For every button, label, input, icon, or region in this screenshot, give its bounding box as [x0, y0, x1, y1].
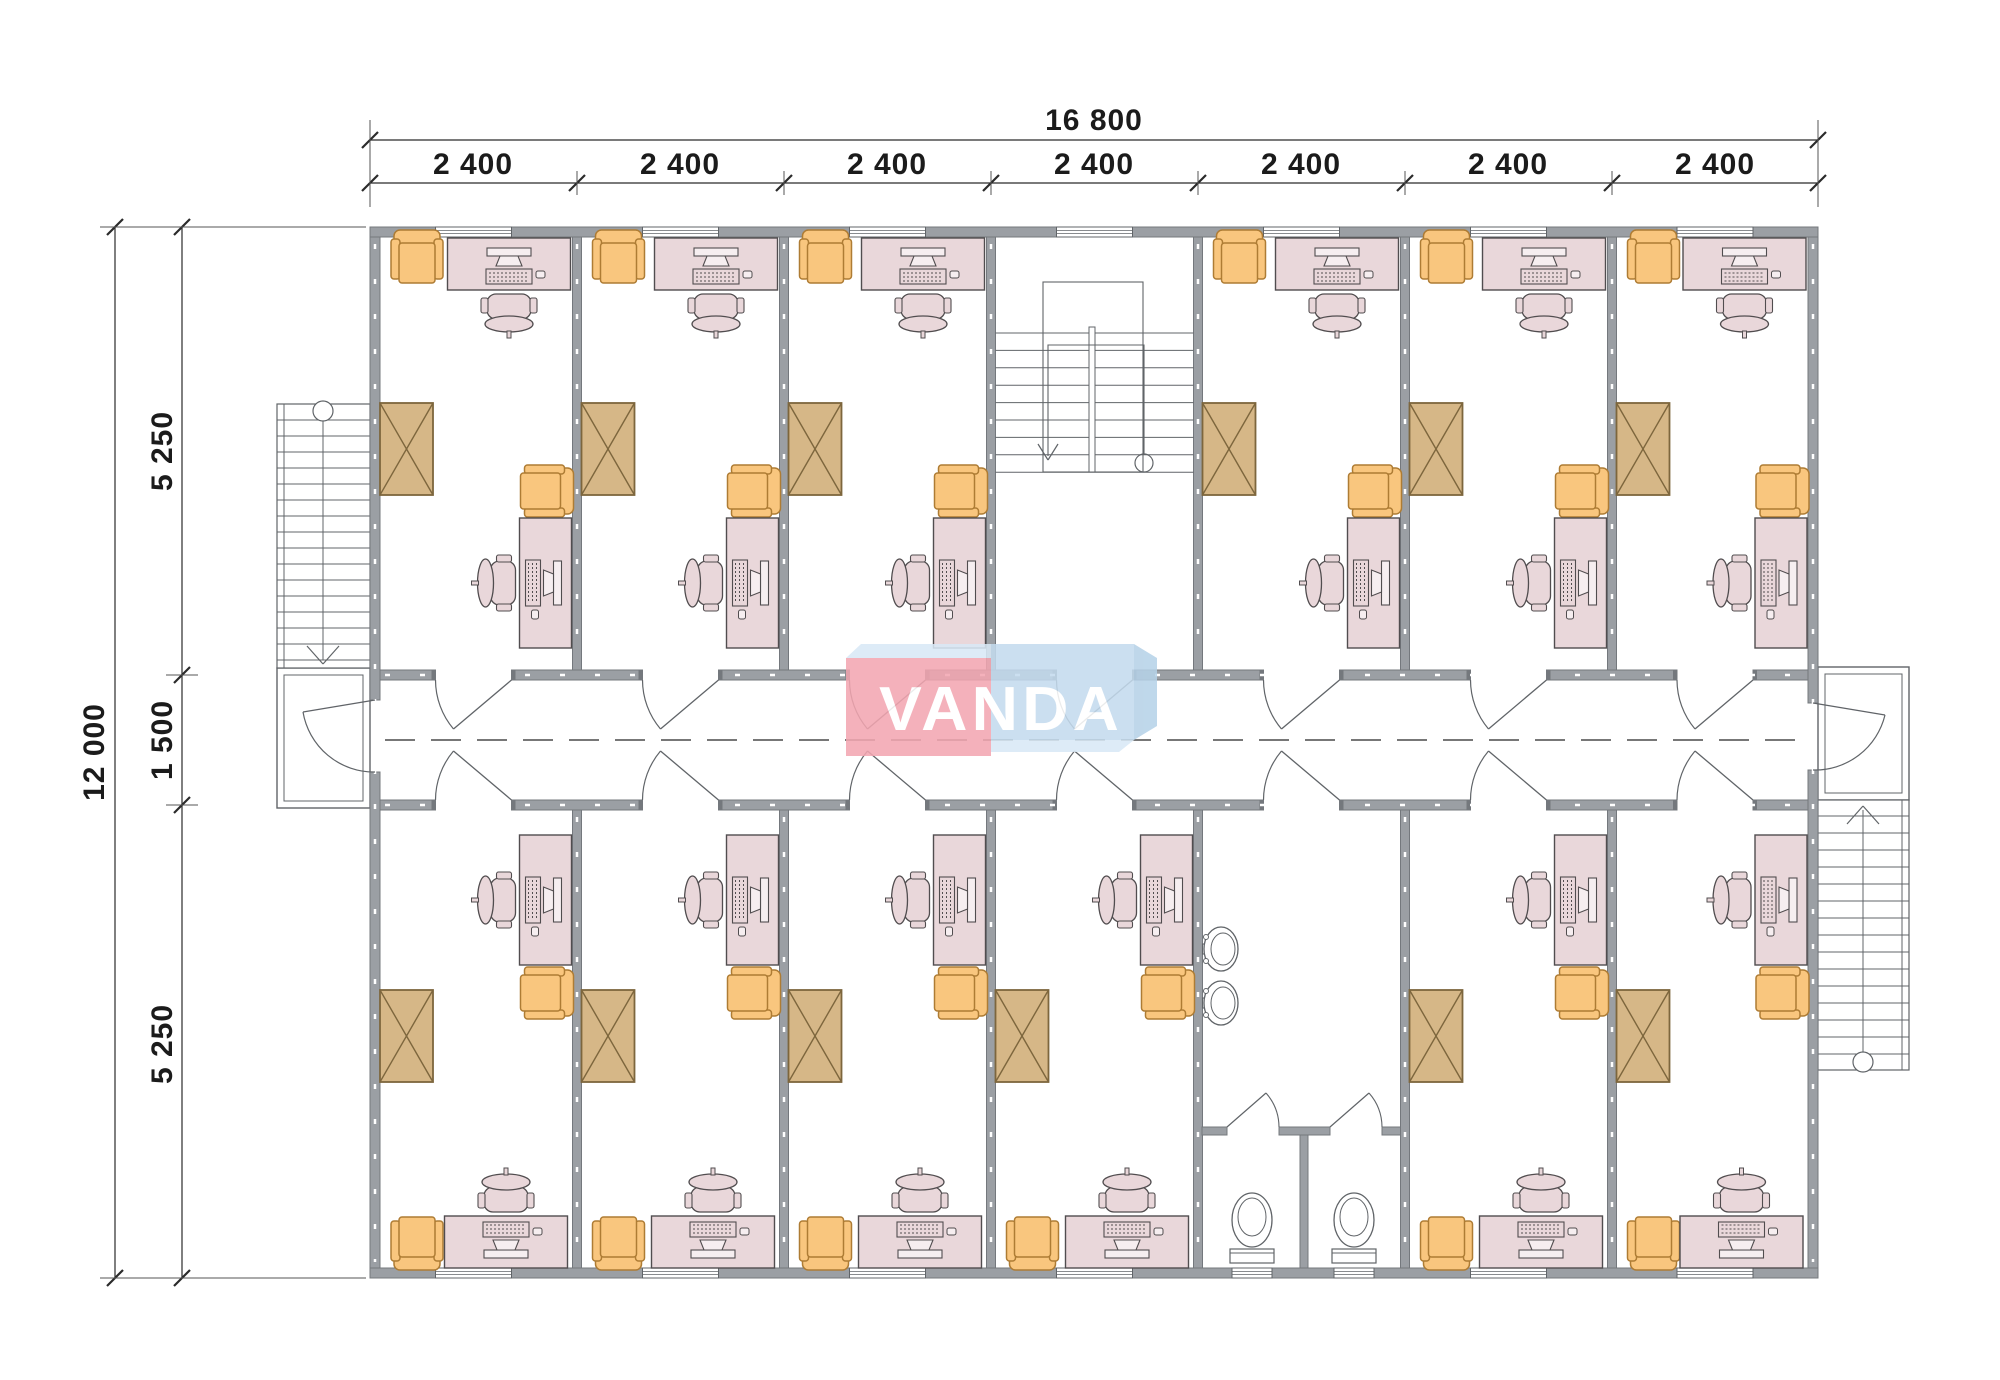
window	[643, 1268, 719, 1278]
toilet	[1332, 1193, 1376, 1263]
office-chair	[481, 294, 537, 338]
armchair	[593, 230, 645, 283]
workstation	[472, 835, 572, 965]
workstation	[652, 1168, 775, 1268]
office-chair	[1507, 872, 1551, 928]
office-chair	[892, 1168, 948, 1212]
office-chair	[886, 872, 930, 928]
dim-top-bay-2: 2 400	[640, 148, 720, 181]
workstation	[1507, 835, 1607, 965]
office-room-bottom	[789, 835, 988, 1270]
window	[1264, 227, 1340, 237]
left-balcony	[277, 668, 370, 808]
workstation	[1480, 1168, 1603, 1268]
washroom	[1203, 927, 1377, 1263]
stall-door	[1227, 1093, 1279, 1127]
right-balcony	[1818, 667, 1909, 800]
office-room-bottom	[1617, 835, 1810, 1270]
window	[1471, 1268, 1547, 1278]
office-room-bottom	[996, 835, 1195, 1270]
armchair	[1142, 967, 1195, 1019]
window	[1677, 227, 1753, 237]
dim-top-bay-5: 2 400	[1261, 148, 1341, 181]
armchair	[391, 230, 443, 283]
armchair	[1007, 1217, 1059, 1270]
dim-top-bay-3: 2 400	[847, 148, 927, 181]
workstation	[1707, 518, 1807, 648]
wardrobe	[996, 990, 1049, 1082]
dim-left-seg-2: 1 500	[146, 700, 179, 780]
sink	[1203, 927, 1239, 971]
armchair	[728, 465, 781, 517]
floor-plan: 16 800 2 400 2 400 2 400 2 400 2 400 2 4…	[0, 0, 2000, 1380]
workstation	[679, 835, 779, 965]
window	[643, 227, 719, 237]
window	[1334, 1268, 1374, 1278]
workstation	[886, 518, 986, 648]
internal-stairwell	[996, 282, 1194, 472]
workstation	[448, 238, 571, 338]
office-room-top	[380, 230, 574, 648]
workstation	[886, 835, 986, 965]
door	[1677, 751, 1753, 800]
office-chair	[1309, 294, 1365, 338]
office-chair	[688, 294, 744, 338]
door	[1264, 751, 1340, 800]
armchair	[1628, 1217, 1680, 1270]
armchair	[935, 967, 988, 1019]
wardrobe	[1617, 403, 1670, 495]
window	[1232, 1268, 1272, 1278]
workstation	[1300, 518, 1400, 648]
armchair	[935, 465, 988, 517]
sink	[1203, 981, 1239, 1025]
armchair	[728, 967, 781, 1019]
armchair	[1421, 230, 1473, 283]
workstation	[445, 1168, 568, 1268]
workstation	[1483, 238, 1606, 338]
wardrobe	[582, 403, 635, 495]
right-exterior-stairs	[1818, 800, 1909, 1072]
armchair	[800, 1217, 852, 1270]
workstation	[1276, 238, 1399, 338]
dim-top-bay-1: 2 400	[433, 148, 513, 181]
armchair	[1214, 230, 1266, 283]
office-chair	[1516, 294, 1572, 338]
wardrobe	[1410, 990, 1463, 1082]
workstation	[859, 1168, 982, 1268]
door	[643, 751, 719, 800]
window	[850, 227, 926, 237]
door	[436, 751, 512, 800]
window	[1057, 227, 1133, 237]
door	[436, 680, 512, 729]
door	[1471, 680, 1547, 729]
logo-wordmark: VANDA	[879, 675, 1123, 744]
wardrobe	[1617, 990, 1670, 1082]
workstation	[679, 518, 779, 648]
wardrobe	[789, 990, 842, 1082]
workstation	[655, 238, 778, 338]
window	[850, 1268, 926, 1278]
window	[436, 1268, 512, 1278]
wardrobe	[789, 403, 842, 495]
dim-top-bay-7: 2 400	[1675, 148, 1755, 181]
office-chair	[1513, 1168, 1569, 1212]
office-chair	[472, 872, 516, 928]
workstation	[1683, 238, 1806, 338]
armchair	[521, 967, 574, 1019]
office-chair	[1300, 555, 1344, 611]
office-chair	[1707, 555, 1751, 611]
stall-door	[1330, 1093, 1382, 1127]
office-chair	[1099, 1168, 1155, 1212]
dim-top-bay-4: 2 400	[1054, 148, 1134, 181]
armchair	[1421, 1217, 1473, 1270]
office-chair	[895, 294, 951, 338]
door	[1264, 680, 1340, 729]
office-room-top	[582, 230, 781, 648]
wardrobe	[380, 403, 433, 495]
wardrobe	[582, 990, 635, 1082]
armchair	[1756, 465, 1809, 517]
office-room-top	[1203, 230, 1402, 648]
armchair	[1756, 967, 1809, 1019]
office-chair	[679, 555, 723, 611]
window	[1057, 1268, 1133, 1278]
dim-left-seg-1: 5 250	[146, 411, 179, 491]
wardrobe	[1410, 403, 1463, 495]
office-chair	[1093, 872, 1137, 928]
logo-bevel-right	[1134, 644, 1157, 740]
office-chair	[472, 555, 516, 611]
office-chair	[685, 1168, 741, 1212]
logo-bevel-top	[846, 644, 991, 658]
workstation	[1507, 518, 1607, 648]
office-chair	[1717, 294, 1773, 338]
door	[1057, 751, 1133, 800]
vanda-logo: VANDA	[846, 644, 1157, 756]
armchair	[1628, 230, 1680, 283]
armchair	[1349, 465, 1402, 517]
floor-plan-screenshot: 16 800 2 400 2 400 2 400 2 400 2 400 2 4…	[0, 0, 2000, 1380]
workstation	[472, 518, 572, 648]
workstation	[1093, 835, 1193, 965]
wardrobe	[1203, 403, 1256, 495]
armchair	[1556, 967, 1609, 1019]
office-room-bottom	[582, 835, 781, 1270]
left-exterior-stairs	[277, 401, 370, 668]
dim-left-seg-3: 5 250	[146, 1004, 179, 1084]
wardrobe	[380, 990, 433, 1082]
dim-top-bay-6: 2 400	[1468, 148, 1548, 181]
window	[436, 227, 512, 237]
armchair	[521, 465, 574, 517]
workstation	[1707, 835, 1807, 965]
window	[1677, 1268, 1753, 1278]
office-chair	[1707, 872, 1751, 928]
armchair	[1556, 465, 1609, 517]
office-chair	[1714, 1168, 1770, 1212]
toilet	[1230, 1193, 1274, 1263]
armchair	[800, 230, 852, 283]
window	[1471, 227, 1547, 237]
dim-top-total: 16 800	[1045, 104, 1143, 137]
workstation	[1066, 1168, 1189, 1268]
armchair	[391, 1217, 443, 1270]
office-room-bottom	[380, 835, 574, 1270]
workstation	[862, 238, 985, 338]
door	[1471, 751, 1547, 800]
dim-left-total: 12 000	[78, 703, 111, 801]
office-chair	[886, 555, 930, 611]
door	[1677, 680, 1753, 729]
door	[643, 680, 719, 729]
office-chair	[478, 1168, 534, 1212]
office-room-top	[789, 230, 988, 648]
office-chair	[679, 872, 723, 928]
office-room-top	[1617, 230, 1810, 648]
office-chair	[1507, 555, 1551, 611]
office-room-top	[1410, 230, 1609, 648]
workstation	[1680, 1168, 1803, 1268]
office-room-bottom	[1410, 835, 1609, 1270]
armchair	[593, 1217, 645, 1270]
door	[850, 751, 926, 800]
